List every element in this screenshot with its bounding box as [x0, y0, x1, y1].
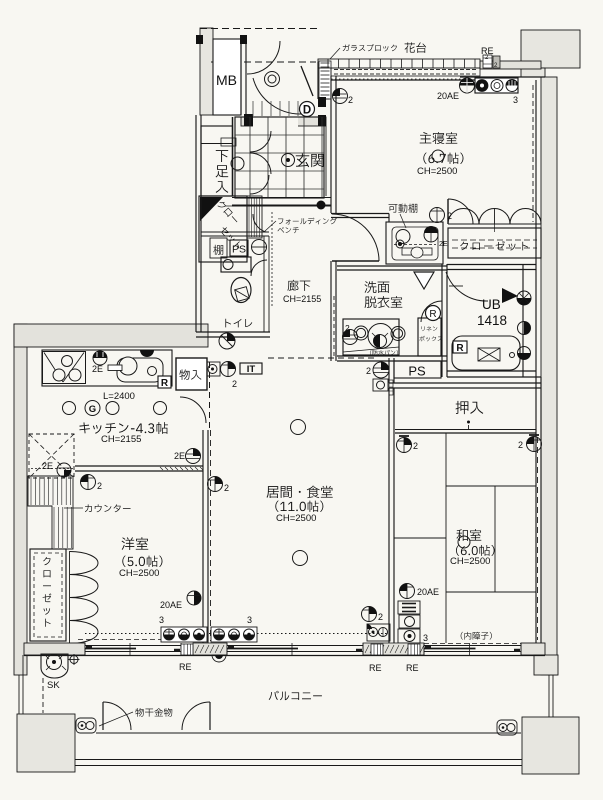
svg-text:2: 2: [348, 95, 353, 105]
svg-text:PS: PS: [408, 364, 426, 379]
svg-text:3: 3: [159, 615, 164, 625]
svg-text:2E: 2E: [439, 241, 448, 248]
svg-text:CH=2155: CH=2155: [101, 434, 141, 445]
svg-text:PS: PS: [232, 244, 246, 256]
svg-text:2: 2: [447, 211, 452, 221]
svg-text:2: 2: [378, 612, 383, 622]
svg-text:CH=2500: CH=2500: [450, 556, 490, 567]
svg-text:CH=2500: CH=2500: [119, 568, 159, 579]
svg-text:2E: 2E: [42, 461, 53, 471]
svg-text:20AE: 20AE: [160, 600, 182, 610]
svg-text:2E: 2E: [92, 364, 103, 374]
svg-text:1418: 1418: [477, 313, 507, 328]
svg-text:20AE: 20AE: [417, 587, 439, 597]
svg-text:2: 2: [345, 323, 350, 333]
svg-text:2: 2: [366, 366, 371, 376]
svg-text:RE: RE: [179, 662, 192, 672]
svg-text:R: R: [161, 378, 169, 389]
svg-text:CH=2155: CH=2155: [283, 294, 321, 304]
svg-text:D: D: [303, 105, 311, 117]
svg-text:3: 3: [423, 633, 428, 643]
svg-text:2: 2: [232, 379, 237, 389]
svg-text:L=2400: L=2400: [103, 391, 135, 402]
svg-text:2E: 2E: [174, 451, 185, 461]
svg-text:3: 3: [513, 95, 518, 105]
svg-text:20AE: 20AE: [437, 91, 459, 101]
svg-text:3: 3: [247, 615, 252, 625]
svg-text:RE: RE: [406, 663, 419, 673]
svg-text:2: 2: [413, 441, 418, 451]
svg-text:CH=2500: CH=2500: [417, 166, 457, 177]
svg-text:2: 2: [224, 483, 229, 493]
svg-text:CH=2500: CH=2500: [276, 513, 316, 524]
svg-text:MB: MB: [216, 72, 237, 88]
svg-text:G: G: [89, 404, 96, 415]
svg-text:2: 2: [97, 481, 102, 491]
svg-text:SK: SK: [47, 680, 60, 691]
svg-text:UB: UB: [482, 297, 501, 312]
svg-text:IT: IT: [247, 364, 256, 375]
svg-text:R: R: [429, 309, 436, 320]
svg-text:2: 2: [518, 440, 523, 450]
svg-text:RE: RE: [369, 663, 382, 673]
svg-text:R: R: [456, 343, 464, 354]
